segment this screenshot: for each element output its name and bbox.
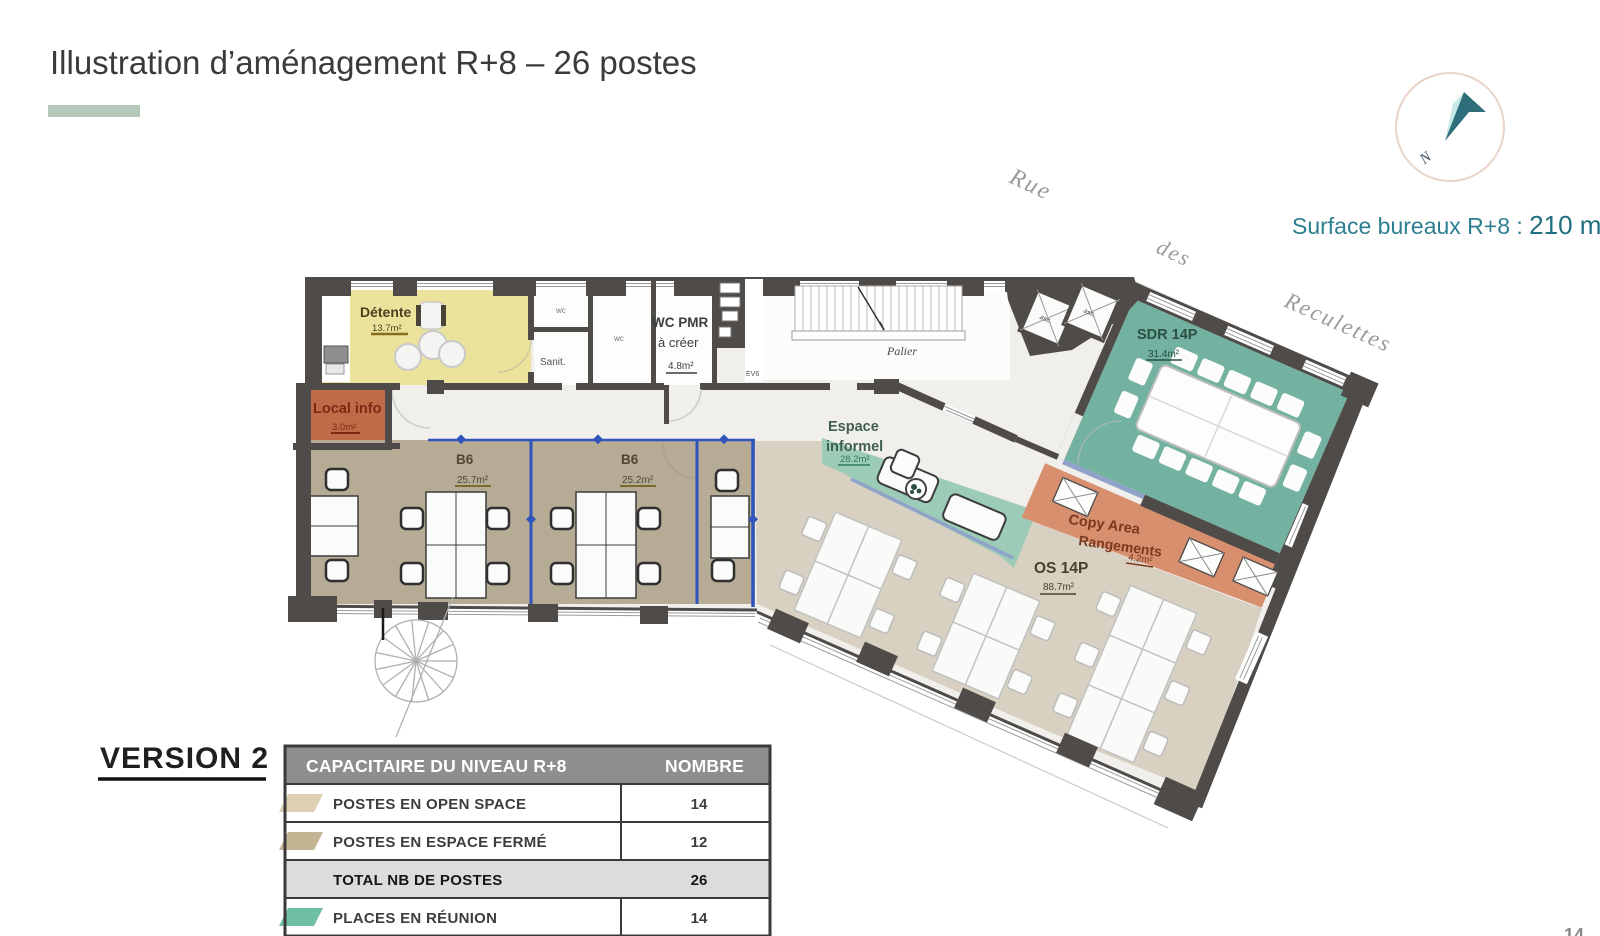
svg-text:Espace: Espace bbox=[828, 419, 879, 435]
svg-text:PLACES EN RÉUNION: PLACES EN RÉUNION bbox=[333, 910, 497, 927]
svg-text:informel: informel bbox=[826, 439, 883, 455]
svg-text:POSTES EN ESPACE FERMÉ: POSTES EN ESPACE FERMÉ bbox=[333, 834, 547, 851]
svg-text:à créer: à créer bbox=[658, 335, 699, 350]
svg-text:OS 14P: OS 14P bbox=[1034, 560, 1088, 577]
svg-text:14: 14 bbox=[1564, 925, 1584, 936]
svg-text:CAPACITAIRE DU NIVEAU R+8: CAPACITAIRE DU NIVEAU R+8 bbox=[306, 756, 567, 776]
svg-text:NOMBRE: NOMBRE bbox=[665, 756, 744, 776]
svg-text:Illustration d’aménagement R+8: Illustration d’aménagement R+8 – 26 post… bbox=[50, 44, 697, 81]
svg-text:VERSION 2: VERSION 2 bbox=[100, 742, 269, 775]
svg-text:Détente: Détente bbox=[360, 304, 412, 320]
svg-text:25.7m²: 25.7m² bbox=[457, 475, 489, 486]
svg-text:3.0m²: 3.0m² bbox=[332, 422, 356, 433]
svg-text:26: 26 bbox=[691, 872, 708, 889]
svg-text:12: 12 bbox=[691, 834, 708, 851]
svg-text:TOTAL NB DE POSTES: TOTAL NB DE POSTES bbox=[333, 872, 503, 889]
svg-text:wc: wc bbox=[555, 306, 566, 315]
svg-text:wc: wc bbox=[613, 334, 624, 343]
svg-text:14: 14 bbox=[691, 910, 708, 927]
svg-text:SDR 14P: SDR 14P bbox=[1137, 327, 1198, 343]
svg-text:28.2m²: 28.2m² bbox=[840, 454, 870, 465]
svg-text:Palier: Palier bbox=[886, 344, 917, 358]
svg-text:EV6: EV6 bbox=[746, 371, 759, 378]
svg-text:POSTES EN OPEN SPACE: POSTES EN OPEN SPACE bbox=[333, 796, 526, 813]
svg-text:Sanit.: Sanit. bbox=[540, 357, 566, 368]
svg-text:14: 14 bbox=[691, 796, 708, 813]
svg-text:B6: B6 bbox=[456, 452, 474, 467]
svg-text:88.7m²: 88.7m² bbox=[1043, 582, 1075, 593]
svg-text:4.8m²: 4.8m² bbox=[668, 361, 694, 372]
svg-text:WC PMR: WC PMR bbox=[652, 315, 708, 330]
svg-text:Surface bureaux R+8 : 210 m: Surface bureaux R+8 : 210 m bbox=[1292, 210, 1600, 240]
svg-text:25.2m²: 25.2m² bbox=[622, 475, 654, 486]
svg-text:B6: B6 bbox=[621, 452, 639, 467]
svg-text:13.7m²: 13.7m² bbox=[372, 323, 402, 334]
svg-text:Local info: Local info bbox=[313, 401, 382, 417]
svg-text:31.4m²: 31.4m² bbox=[1148, 349, 1180, 360]
